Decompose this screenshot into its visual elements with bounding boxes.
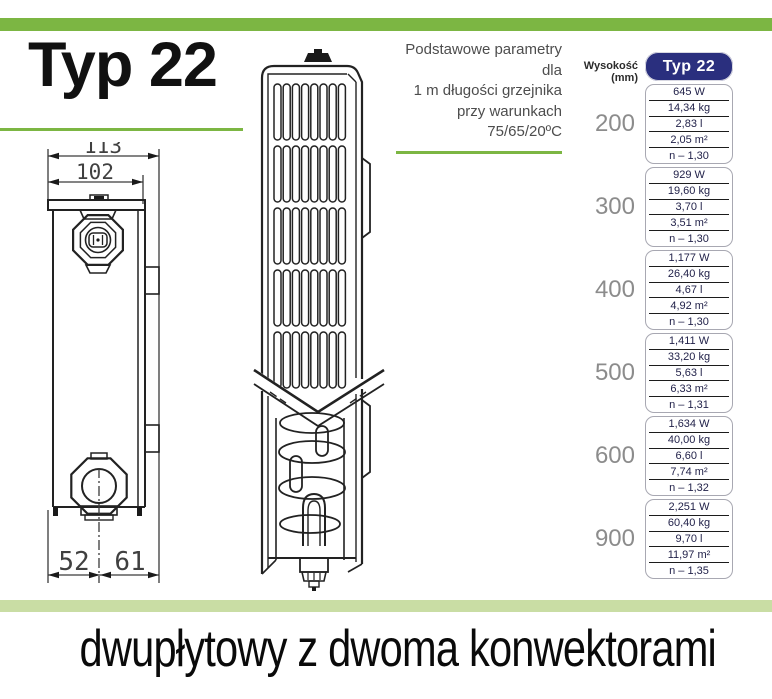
- spec-cell: 33,20 kg: [649, 349, 729, 365]
- spec-cell: 3,51 m²: [649, 214, 729, 230]
- spec-sheet: Typ 22 Podstawowe parametry dla 1 m dług…: [0, 0, 772, 699]
- spec-cell: 645 W: [649, 85, 729, 100]
- intro-line: przy warunkach: [396, 102, 562, 123]
- intro-line: 75/65/20ºC: [396, 122, 562, 143]
- spec-group-900: 900 2,251 W 60,40 kg 9,70 l 11,97 m² n –…: [563, 500, 735, 578]
- height-value: 900: [563, 525, 645, 553]
- spec-group-200: 200 645 W 14,34 kg 2,83 l 2,05 m² n – 1,…: [563, 85, 735, 163]
- spec-cell: 4,67 l: [649, 282, 729, 298]
- height-value: 400: [563, 276, 645, 304]
- spec-cell: 5,63 l: [649, 365, 729, 381]
- spec-box: 1,634 W 40,00 kg 6,60 l 7,74 m² n – 1,32: [645, 416, 733, 496]
- spec-box: 1,411 W 33,20 kg 5,63 l 6,33 m² n – 1,31: [645, 333, 733, 413]
- page-title: Typ 22: [28, 34, 217, 97]
- intro-line: 1 m długości grzejnika: [396, 81, 562, 102]
- dim-52-label: 52: [58, 547, 89, 577]
- spec-box: 2,251 W 60,40 kg 9,70 l 11,97 m² n – 1,3…: [645, 499, 733, 579]
- spec-cell: n – 1,30: [649, 230, 729, 246]
- spec-cell: 2,05 m²: [649, 131, 729, 147]
- intro-line: Podstawowe parametry dla: [396, 40, 562, 81]
- spec-cell: 9,70 l: [649, 531, 729, 547]
- spec-cell: 40,00 kg: [649, 432, 729, 448]
- spec-box: 1,177 W 26,40 kg 4,67 l 4,92 m² n – 1,30: [645, 250, 733, 330]
- spec-cell: 1,411 W: [649, 334, 729, 349]
- title-underline: [0, 128, 243, 131]
- spec-cell: 19,60 kg: [649, 183, 729, 199]
- spec-table: 200 645 W 14,34 kg 2,83 l 2,05 m² n – 1,…: [563, 85, 735, 583]
- footer-caption: dwupłytowy z dwoma konwektorami: [0, 616, 772, 684]
- height-value: 300: [563, 193, 645, 221]
- spec-cell: 14,34 kg: [649, 100, 729, 116]
- spec-cell: n – 1,31: [649, 396, 729, 412]
- spec-cell: 60,40 kg: [649, 515, 729, 531]
- spec-cell: 1,177 W: [649, 251, 729, 266]
- dim-61-label: 61: [114, 547, 145, 577]
- spec-cell: 2,251 W: [649, 500, 729, 515]
- spec-cell: n – 1,30: [649, 147, 729, 163]
- spec-group-400: 400 1,177 W 26,40 kg 4,67 l 4,92 m² n – …: [563, 251, 735, 329]
- table-column-header: Typ 22: [645, 52, 733, 81]
- spec-cell: n – 1,35: [649, 562, 729, 578]
- table-height-header: Wysokość (mm): [558, 60, 638, 84]
- spec-cell: n – 1,32: [649, 479, 729, 495]
- spec-cell: 2,83 l: [649, 116, 729, 132]
- spec-box: 929 W 19,60 kg 3,70 l 3,51 m² n – 1,30: [645, 167, 733, 247]
- height-value: 600: [563, 442, 645, 470]
- spec-cell: 929 W: [649, 168, 729, 183]
- spec-cell: 11,97 m²: [649, 546, 729, 562]
- intro-underline: [396, 151, 562, 154]
- radiator-front-cutaway-drawing: [252, 46, 387, 602]
- bottom-accent-bar: [0, 600, 772, 612]
- radiator-side-section-drawing: 113 102: [18, 142, 228, 597]
- intro-paragraph: Podstawowe parametry dla 1 m długości gr…: [396, 40, 562, 154]
- spec-cell: 6,60 l: [649, 448, 729, 464]
- spec-cell: 7,74 m²: [649, 463, 729, 479]
- footer-caption-text: dwupłytowy z dwoma konwektorami: [80, 616, 716, 684]
- spec-cell: 3,70 l: [649, 199, 729, 215]
- spec-group-300: 300 929 W 19,60 kg 3,70 l 3,51 m² n – 1,…: [563, 168, 735, 246]
- dim-113-label: 113: [84, 142, 122, 158]
- spec-cell: 6,33 m²: [649, 380, 729, 396]
- dim-102-label: 102: [76, 160, 114, 184]
- height-value: 500: [563, 359, 645, 387]
- spec-cell: 4,92 m²: [649, 297, 729, 313]
- spec-cell: n – 1,30: [649, 313, 729, 329]
- spec-group-500: 500 1,411 W 33,20 kg 5,63 l 6,33 m² n – …: [563, 334, 735, 412]
- spec-cell: 1,634 W: [649, 417, 729, 432]
- spec-group-600: 600 1,634 W 40,00 kg 6,60 l 7,74 m² n – …: [563, 417, 735, 495]
- spec-cell: 26,40 kg: [649, 266, 729, 282]
- spec-box: 645 W 14,34 kg 2,83 l 2,05 m² n – 1,30: [645, 84, 733, 164]
- height-value: 200: [563, 110, 645, 138]
